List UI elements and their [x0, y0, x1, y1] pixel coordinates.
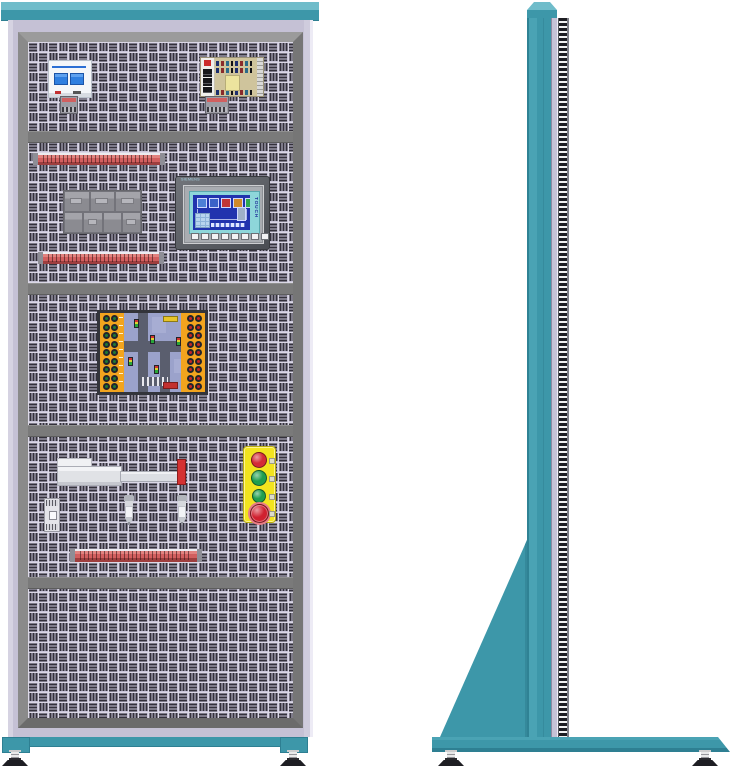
banana-jack: [111, 383, 118, 390]
board-jack-labels: [119, 317, 123, 388]
banana-jack: [111, 366, 118, 373]
banana-jack: [195, 332, 202, 339]
side-top-cap: [527, 2, 557, 19]
banana-jack: [195, 349, 202, 356]
din-rail-red-terminals: [70, 549, 202, 562]
hmi-function-key[interactable]: [191, 233, 199, 240]
psu-logo: [204, 60, 211, 66]
banana-jack: [187, 383, 194, 390]
board-right-jacks: [186, 315, 202, 390]
banana-jack: [195, 324, 202, 331]
side-column: [527, 18, 551, 737]
board-jack-strip-left: [100, 313, 124, 392]
pushbutton-station: [243, 446, 276, 523]
side-gusset: [440, 540, 527, 737]
terminal-block: [60, 96, 78, 114]
banana-jack: [187, 349, 194, 356]
traffic-light-icon: [134, 319, 139, 328]
banana-jack: [187, 375, 194, 382]
breaker-label: [73, 91, 81, 94]
psu-components: [216, 68, 254, 73]
hmi-screen[interactable]: [193, 195, 250, 230]
hmi-brand-label: SIEMENS: [181, 178, 200, 182]
pushbutton[interactable]: [251, 452, 267, 468]
banana-jack: [195, 366, 202, 373]
button-tag: [269, 476, 275, 482]
hmi-table-graphic: [195, 213, 210, 228]
button-tag: [269, 511, 275, 517]
perforated-panel: SIEMENS TOUCH: [28, 42, 293, 718]
banana-jack: [103, 375, 110, 382]
panel-divider: [28, 425, 293, 437]
button-tag: [269, 494, 275, 500]
button-tag: [269, 458, 275, 464]
breaker-toggle[interactable]: [54, 73, 68, 85]
banana-jack: [111, 332, 118, 339]
hmi-function-key[interactable]: [211, 233, 219, 240]
hmi-function-key[interactable]: [201, 233, 209, 240]
banana-jack: [187, 315, 194, 322]
hmi-function-key[interactable]: [221, 233, 229, 240]
banana-jack: [187, 324, 194, 331]
pushbutton[interactable]: [252, 489, 266, 503]
traffic-training-board: [97, 310, 208, 395]
hmi-face: TOUCH: [183, 185, 264, 244]
plc-module: [122, 212, 141, 233]
banana-jack: [195, 358, 202, 365]
proximity-sensor: [124, 495, 134, 525]
psu-components: [216, 61, 254, 66]
banana-jack: [103, 324, 110, 331]
psu-terminals: [203, 69, 212, 93]
banana-jack: [111, 315, 118, 322]
banana-jack: [111, 358, 118, 365]
hmi-tank-icon: [197, 198, 207, 208]
hmi-function-key[interactable]: [261, 233, 269, 240]
breaker-label: [55, 91, 61, 94]
emergency-stop-button[interactable]: [250, 504, 269, 523]
banana-jack: [187, 366, 194, 373]
plc-module: [90, 191, 116, 212]
board-jack-strip-right: [181, 313, 205, 392]
hmi-function-key[interactable]: [231, 233, 239, 240]
hmi-function-key[interactable]: [241, 233, 249, 240]
din-rail-red-terminals: [38, 252, 164, 264]
hmi-panel: SIEMENS TOUCH: [175, 176, 270, 250]
psu-heatsink: [257, 58, 263, 96]
banana-jack: [103, 332, 110, 339]
hmi-key-row: [191, 233, 269, 240]
leveling-foot: [438, 750, 464, 766]
board-left-jacks: [102, 315, 118, 390]
circuit-breaker[interactable]: [48, 60, 92, 98]
din-rail-red-terminals: [33, 153, 165, 165]
traffic-light-icon: [150, 335, 155, 344]
equipment-drawing: SIEMENS TOUCH: [0, 0, 730, 766]
banana-jack: [103, 315, 110, 322]
side-base-plate: [432, 737, 730, 752]
traffic-light-icon: [154, 365, 159, 374]
hmi-touch-label: TOUCH: [253, 197, 258, 224]
leveling-foot: [280, 750, 306, 766]
actuator-rod: [120, 471, 179, 482]
proximity-sensor: [177, 495, 187, 525]
breaker-toggle[interactable]: [70, 73, 84, 85]
cabinet-base-band: [2, 737, 308, 747]
banana-jack: [103, 383, 110, 390]
hmi-vessel-graphic: [237, 207, 246, 221]
relay-module: [44, 498, 60, 532]
linear-actuator: [57, 466, 122, 486]
perforation-edge-strip: [558, 18, 569, 737]
plc-module-block: [63, 190, 142, 234]
board-label-yellow: [163, 316, 178, 322]
hmi-tank-icon: [209, 198, 219, 208]
banana-jack: [103, 366, 110, 373]
banana-jack: [187, 341, 194, 348]
hmi-function-key[interactable]: [251, 233, 259, 240]
banana-jack: [111, 349, 118, 356]
leveling-foot: [692, 750, 718, 766]
plc-module: [115, 191, 141, 212]
banana-jack: [187, 358, 194, 365]
board-label-red: [163, 382, 178, 389]
plc-module: [83, 212, 102, 233]
hmi-screen-frame: TOUCH: [189, 191, 260, 234]
plc-module: [64, 212, 83, 233]
banana-jack: [195, 315, 202, 322]
banana-jack: [195, 383, 202, 390]
panel-divider: [28, 577, 293, 589]
breaker-marking: [52, 66, 86, 68]
panel-divider: [28, 131, 293, 143]
banana-jack: [111, 375, 118, 382]
board-intersection-graphic: [124, 313, 181, 392]
pushbutton[interactable]: [251, 470, 267, 486]
cabinet-top-cap: [1, 2, 319, 21]
hmi-tank-icon: [221, 198, 231, 208]
terminal-block: [205, 96, 229, 114]
banana-jack: [111, 341, 118, 348]
panel-divider: [28, 283, 293, 295]
psu-transformer: [225, 75, 240, 91]
banana-jack: [195, 341, 202, 348]
leveling-foot: [2, 750, 28, 766]
hmi-conveyor-graphic: [211, 223, 245, 227]
switching-power-supply: [200, 57, 264, 97]
banana-jack: [103, 349, 110, 356]
plc-module: [64, 191, 90, 212]
banana-jack: [187, 332, 194, 339]
banana-jack: [103, 358, 110, 365]
traffic-light-icon: [128, 357, 133, 366]
banana-jack: [103, 341, 110, 348]
actuator-flag: [177, 459, 186, 485]
banana-jack: [195, 375, 202, 382]
plc-module: [103, 212, 122, 233]
side-frame-strip: [551, 18, 558, 737]
banana-jack: [111, 324, 118, 331]
